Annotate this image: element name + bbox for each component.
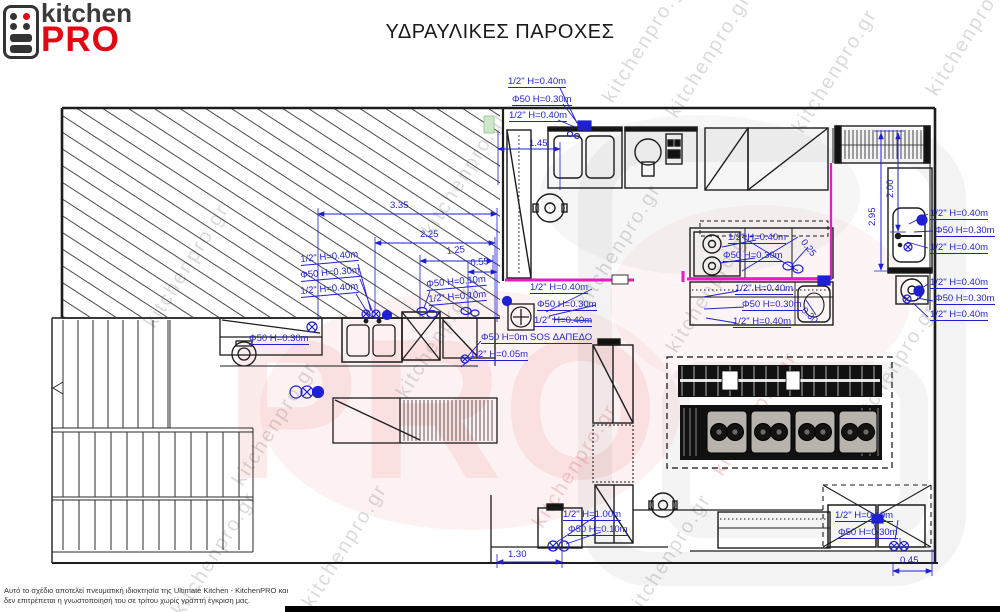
- dimension-label: 1/2" H=0.40m: [930, 310, 988, 321]
- dimension-label: Φ50 H=0.30m: [537, 300, 597, 311]
- dimension-label: 1.45: [529, 139, 548, 149]
- dimension-label: Φ50 H=0.30m: [838, 528, 898, 539]
- dimension-label: Φ50 H=0.30m: [723, 251, 783, 262]
- dimension-label: Φ50 H=0.30m: [742, 300, 802, 311]
- dimension-label: 3.35: [390, 201, 409, 211]
- dimension-label: 1/2" H=0.40m: [735, 284, 793, 295]
- door-marker: [612, 275, 628, 284]
- dimension-label: Φ50 H=0m SOS ΔΑΠΕΔΟ: [481, 333, 592, 344]
- plan-canvas: kitchenpro.grkitchenpro.grkitchenpro.grk…: [0, 0, 1000, 612]
- dimension-label: 1/2" H=0.40m: [835, 511, 893, 522]
- dimension-label: Φ50 H=0.30m: [249, 334, 309, 345]
- dimension-label: 1/2" H=1.00m: [563, 510, 621, 521]
- dimension-label: 1/2" H=0.40m: [930, 209, 988, 220]
- stair-direction-arrow: [53, 382, 63, 394]
- dimension-label: 1/2" H=0.40m: [930, 278, 988, 289]
- disclaimer-line-2: δεν επιτρέπεται η γνωστοποίησή του σε τρ…: [4, 596, 288, 606]
- dimension-label: 1.30: [508, 550, 527, 560]
- dimension-label: Φ50 H=0.30m: [935, 226, 995, 237]
- dimension-label: 2.95: [868, 208, 878, 227]
- dimension-label: 1/2" H=0.40m: [509, 111, 567, 122]
- dimension-label: 0.45: [900, 556, 919, 566]
- dimension-label: Φ50 H=0.30m: [935, 294, 995, 305]
- bottom-border-bar: [285, 606, 1000, 612]
- dimension-label: 1/2" H=0.40m: [733, 317, 791, 328]
- disclaimer-line-1: Αυτό το σχέδιο αποτελεί πνευματική ιδιοκ…: [4, 586, 288, 596]
- dimension-label: 1/2" H=0.40m: [530, 283, 588, 294]
- dimension-label: 1/2" H=0.40m: [930, 243, 988, 254]
- dimension-label: 2.25: [420, 230, 439, 240]
- copyright-disclaimer: Αυτό το σχέδιο αποτελεί πνευματική ιδιοκ…: [4, 586, 288, 606]
- dimension-label: 1/2" H=0.40m: [508, 77, 566, 88]
- shelving-unit: [835, 126, 930, 163]
- dimension-label: 1/2" H=0.40m: [534, 316, 592, 327]
- dimension-label: 1.25: [446, 245, 465, 257]
- dimension-label: Φ50 H=0.30m: [512, 95, 572, 106]
- dimension-label: Φ50 H=0.10m: [568, 525, 628, 536]
- floor-drain: [651, 493, 675, 517]
- cooking-island: [667, 357, 892, 468]
- dimension-label: 1/2" H=0.05m: [470, 350, 528, 361]
- dimension-label: 1/2" H=0.40m: [728, 233, 786, 244]
- dimension-label: 0.55: [470, 257, 489, 269]
- bottom-right-units: [718, 485, 931, 548]
- dimension-label: 2.00: [886, 180, 896, 199]
